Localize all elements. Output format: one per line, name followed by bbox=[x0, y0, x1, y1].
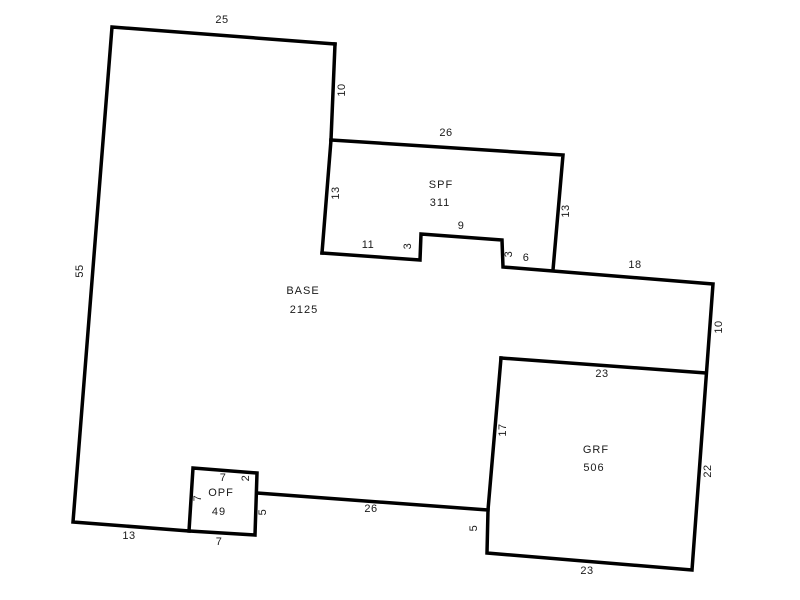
dimension-label-10: 18 bbox=[628, 259, 641, 271]
dimension-label-20: 7 bbox=[220, 472, 227, 484]
notch-east-grf-walls-line bbox=[257, 234, 713, 570]
dimension-label-13: 17 bbox=[497, 423, 509, 436]
dimension-label-1: 10 bbox=[336, 83, 348, 96]
dimension-label-11: 10 bbox=[713, 320, 725, 333]
dimension-label-15: 5 bbox=[468, 525, 480, 532]
area-name-opf: OPF bbox=[208, 487, 234, 499]
dimension-label-9: 6 bbox=[523, 252, 530, 264]
dimension-label-22: 7 bbox=[216, 536, 223, 548]
area-name-spf: SPF bbox=[429, 179, 453, 191]
dimension-label-6: 3 bbox=[402, 243, 414, 250]
dimension-label-4: 13 bbox=[560, 204, 572, 217]
floor-plan-canvas: 2510261313113936181023172252326527771355… bbox=[0, 0, 800, 600]
dimension-label-16: 23 bbox=[580, 565, 593, 577]
dimension-label-17: 26 bbox=[364, 503, 377, 515]
dimension-label-24: 55 bbox=[74, 264, 86, 277]
area-value-grf: 506 bbox=[583, 462, 604, 474]
dimension-label-19: 2 bbox=[240, 475, 252, 482]
area-value-spf: 311 bbox=[430, 197, 451, 209]
dimension-label-23: 13 bbox=[122, 530, 135, 542]
dimension-label-5: 11 bbox=[362, 239, 374, 251]
area-value-base: 2125 bbox=[290, 304, 318, 316]
dimension-label-3: 13 bbox=[330, 186, 342, 199]
dimension-label-12: 23 bbox=[595, 368, 608, 380]
dimension-label-0: 25 bbox=[215, 14, 228, 26]
dimension-label-7: 9 bbox=[458, 220, 465, 232]
dimension-label-21: 7 bbox=[192, 495, 204, 502]
dimension-label-8: 3 bbox=[503, 251, 515, 258]
dimension-label-2: 26 bbox=[439, 127, 452, 139]
area-value-opf: 49 bbox=[212, 506, 226, 518]
floor-plan-sketch: 2510261313113936181023172252326527771355… bbox=[0, 0, 800, 600]
base-upper-east-wall-line bbox=[331, 44, 335, 140]
dimension-label-18: 5 bbox=[257, 509, 269, 516]
area-name-base: BASE bbox=[286, 285, 319, 297]
area-name-grf: GRF bbox=[583, 444, 609, 456]
base-top-west-bottom-walls-line bbox=[73, 27, 335, 531]
dimension-label-14: 22 bbox=[702, 464, 714, 477]
